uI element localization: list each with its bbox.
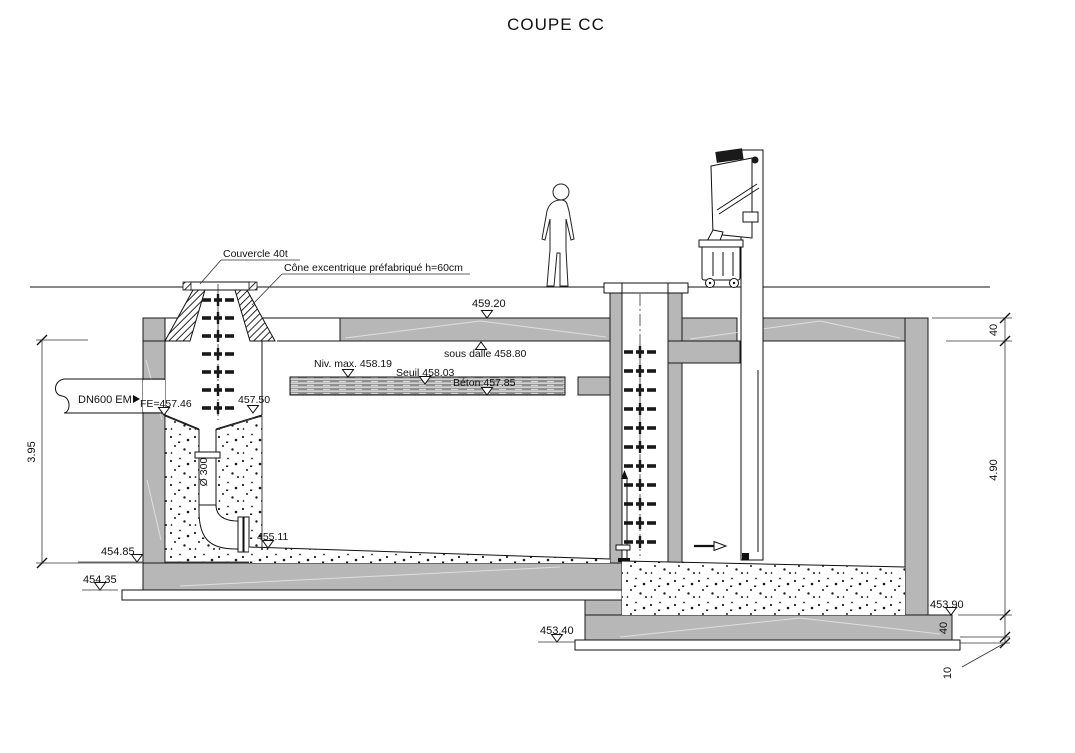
base-step (585, 600, 622, 615)
level-459-20: 459.20 (472, 298, 506, 310)
level-457-50: 457.50 (238, 394, 270, 406)
floor-screed (249, 547, 610, 563)
manhole-cone (165, 282, 275, 341)
slab-left-wallhead (143, 318, 165, 341)
pipe-break-symbol (55, 379, 69, 413)
cover-plate (190, 282, 250, 290)
drop-chute (165, 341, 262, 429)
machine-housing (711, 158, 752, 238)
screen-foot (742, 553, 749, 560)
dim-3-95: 3.95 (26, 441, 38, 462)
weir-band (290, 377, 610, 395)
dim-40-top: 40 (988, 324, 1000, 336)
top-slab-right-a (682, 318, 737, 341)
downstand-beam (668, 341, 740, 363)
dimension-right: 40 4.90 40 10 (932, 313, 1012, 679)
coupe-cc-section-drawing: COUPE CC (0, 0, 1075, 753)
shaft-wall-left (610, 293, 622, 563)
benching-concrete (165, 416, 262, 562)
inlet-direction-icon (133, 395, 140, 403)
right-wall (905, 318, 928, 615)
pipe-collar (195, 452, 220, 458)
drawing-sheet: COUPE CC (0, 0, 1075, 753)
person-figure (542, 184, 574, 286)
top-slab-right-b (762, 318, 905, 341)
right-chamber-fill (622, 561, 905, 615)
cone-label: Cône excentrique préfabriqué h=60cm (284, 262, 463, 274)
drive-wheel (752, 157, 759, 164)
callout-cone: Cône excentrique préfabriqué h=60cm (252, 262, 470, 305)
lean-concrete-right (575, 640, 960, 650)
dimension-left: 3.95 (26, 335, 143, 568)
dim-4-90: 4.90 (988, 459, 1000, 480)
shaft-wall-right (668, 293, 682, 563)
lean-concrete-left (122, 590, 622, 600)
inlet-pipe-label: DN600 EM (78, 394, 132, 406)
level-454-85: 454.85 (101, 546, 135, 558)
dim-40-bottom: 40 (938, 622, 950, 634)
waste-bin (699, 240, 743, 288)
outlet-flange (238, 517, 243, 552)
dim-10: 10 (942, 667, 954, 679)
shaft-rim (604, 283, 688, 293)
level-sous-dalle: sous dalle 458.80 (444, 348, 526, 360)
base-slab-right (585, 615, 952, 640)
cover-label: Couvercle 40t (223, 248, 288, 260)
drawing-title: COUPE CC (507, 15, 605, 34)
flow-arrow (694, 542, 726, 551)
level-niv-max: Niv. max. 458.19 (314, 358, 392, 370)
left-wall (143, 341, 165, 563)
bin-lid (699, 240, 743, 247)
drop-pipe-label: Ø 300 (198, 458, 210, 487)
